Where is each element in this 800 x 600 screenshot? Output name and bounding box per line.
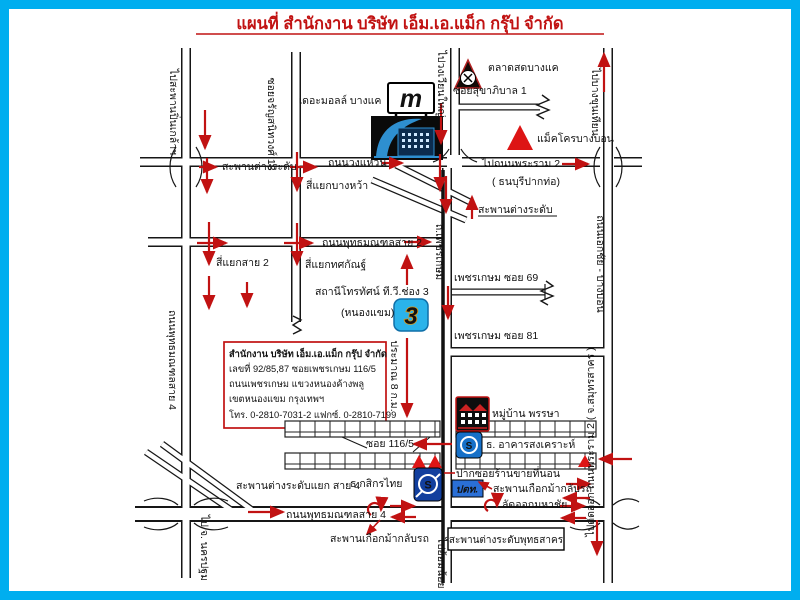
road-label-soi81: เพชรเกษม ซอย 81 — [454, 330, 538, 342]
place-label-the-mall: เดอะมอลล์ บางแค — [299, 94, 382, 107]
office-line1: สำนักงาน บริษัท เอ็ม.เอ.แม็ก กรุ๊ป จำกัด — [229, 347, 387, 360]
road-label-to-omnoi: ไปอ้อมน้อย — [435, 536, 448, 588]
road-label-soi-charan13: ซอยจรัญสนิทวงศ์ 13 — [265, 77, 278, 170]
office-line3: ถนนเพชรเกษม แขวงหนองค้างพลู — [229, 379, 364, 390]
road-label-soi1165: ซอย 116/5 — [366, 438, 414, 450]
road-label-sai4-vertical: ถนนพุทธมณฑลสาย 4 — [166, 310, 178, 410]
road-label-phetkasem: ถ.เพชรเกษม — [433, 224, 445, 280]
place-label-mattress-shop: ปากซอยร้านขายที่นอน — [456, 466, 560, 480]
road-label-to-wongwianyai: ไปวงเวียนใหญ่ — [435, 50, 448, 118]
road-label-phutthamonthon2: ถนนพุทธมณฑลสาย 2 — [322, 237, 422, 249]
road-label-ekachai: ถนนเอกชัย - บางบอน — [594, 215, 606, 312]
place-label-village: หมู่บ้าน พรรษา — [492, 408, 560, 420]
road-label-phutthamonthon4: ถนนพุทธมณฑลสาย 4 — [286, 509, 386, 521]
junction-label-phutthasakhon: สะพานต่างระดับพุทธสาคร — [449, 535, 564, 546]
ghb-logo-letter: S — [466, 441, 473, 452]
junction-label-sai4-interchange: สะพานต่างระดับแยก สาย 4 — [236, 480, 360, 492]
junction-label-interchange-left: สะพานต่างระดับ — [222, 161, 297, 173]
junction-label-horseshoe2: สะพานเกือกม้ากลับรถ — [330, 532, 429, 545]
office-line5: โทร. 0-2810-7031-2 แฟกซ์. 0-2810-7199 — [229, 409, 396, 420]
junction-label-horseshoe1: สะพานเกือกม้ากลับรถ — [493, 482, 592, 495]
road-label-to-rama2: ไปถนนพระราม 2 — [481, 157, 560, 170]
ptt-label: ปตท. — [456, 485, 478, 496]
place-label-kbank: ธ.กสิกรไทย — [350, 477, 402, 490]
road-label-to-nakhonpathom: ไป จ. นครปฐม — [198, 514, 211, 581]
office-info-box: สำนักงาน บริษัท เอ็ม.เอ.แม็ก กรุ๊ป จำกัด… — [224, 342, 396, 428]
kbank-logo-letter: S — [424, 480, 431, 492]
junction-label-totsakan: สี่แยกทศกัณฐ์ — [305, 257, 366, 271]
channel3-logo-icon: 3 — [394, 299, 428, 331]
place-label-ghb: ธ. อาคารสงเคราะห์ — [486, 438, 575, 451]
place-label-market: ตลาดสดบางแค — [488, 62, 559, 74]
ptt-icon: ปตท. — [452, 480, 483, 497]
channel3-logo-number: 3 — [404, 303, 418, 330]
junction-label-sai2: สี่แยกสาย 2 — [216, 255, 269, 269]
annotation-approx-8km: ประมาณ 8 ก.ม. — [388, 340, 400, 411]
road-label-to-pinklao: ไปสะพานปิ่นเกล้าฯ — [167, 68, 181, 155]
road-label-thonburi-paktho: ( ธนบุรีปากท่อ) — [492, 175, 560, 188]
road-label-to-bangkhunthian: ไปบางขุนเทียน — [589, 67, 602, 136]
map-page: m 3 สำนักงาน บริษัท เอ็ม.เอ.แม็ก กรุ๊ป จ… — [0, 0, 800, 600]
kbank-logo-icon: S — [414, 468, 442, 501]
junction-label-mahachai: ลัดออกมหาชัย — [502, 499, 567, 511]
village-icon — [456, 397, 489, 431]
page-title: แผนที่ สำนักงาน บริษัท เอ็ม.เอ.แม็ก กรุ๊… — [236, 11, 563, 34]
office-line2: เลขที่ 92/85,87 ซอยเพชรเกษม 116/5 — [229, 362, 376, 374]
map-svg: m 3 สำนักงาน บริษัท เอ็ม.เอ.แม็ก กรุ๊ป จ… — [0, 0, 800, 600]
road-label-soi69: เพชรเกษม ซอย 69 — [454, 272, 538, 284]
place-label-channel3: สถานีโทรทัศน์ ที.วี.ช่อง 3 — [315, 285, 429, 298]
road-label-to-rama2-samutsakhon: ไปตัดออก ถนนพระราม 2 ( จ.สมุทรสาคร ) — [584, 347, 597, 537]
road-label-wongwaen: ถนนวงแหวน — [328, 157, 387, 169]
office-line4: เขตหนองแขม กรุงเทพฯ — [229, 394, 324, 405]
place-label-makro: แม็คโครบางบอน — [537, 131, 614, 145]
junction-label-interchange-phet: สะพานต่างระดับ — [478, 204, 553, 216]
mall-logo-letter: m — [400, 85, 422, 113]
ghb-logo-icon: S — [456, 432, 482, 458]
place-label-channel3-nongkhaem: (หนองแขม) — [341, 307, 394, 319]
road-label-soi-sukhaphiban: ซอยสุขาภิบาล 1 — [453, 85, 527, 97]
junction-label-bangwa: สี่แยกบางหว้า — [306, 178, 368, 192]
